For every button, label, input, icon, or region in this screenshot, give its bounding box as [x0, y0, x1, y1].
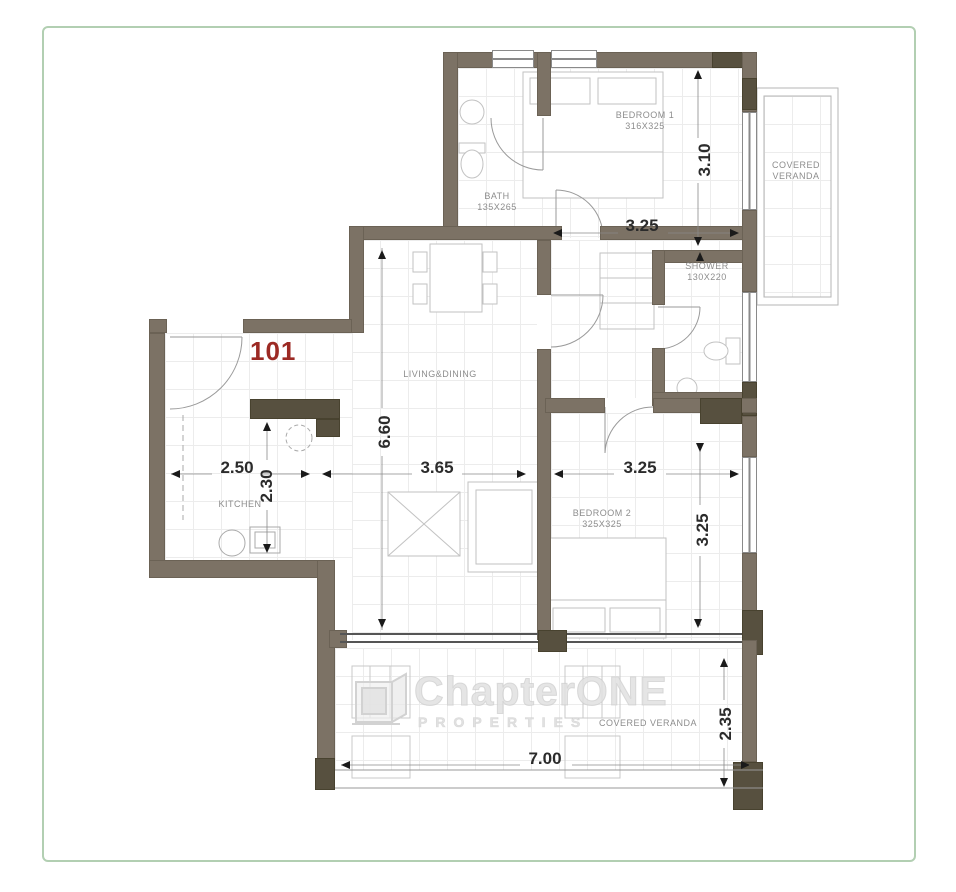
bath-size: 135X265 — [477, 202, 517, 212]
label-bath: BATH 135X265 — [477, 191, 517, 213]
label-bedroom2: BEDROOM 2 325X325 — [573, 508, 632, 530]
bedroom1-name: BEDROOM 1 — [616, 110, 675, 120]
dim-arrow-up — [720, 658, 728, 667]
dim-veranda-width: 7.00 — [528, 749, 561, 769]
shower-size: 130X220 — [687, 272, 727, 282]
watermark-tagline: PROPERTIES — [418, 714, 588, 730]
bedroom2-name: BEDROOM 2 — [573, 508, 632, 518]
dim-veranda-depth: 2.35 — [716, 707, 736, 740]
watermark-logo-icon — [348, 668, 412, 732]
veranda-bottom-name: COVERED VERANDA — [599, 718, 697, 728]
dim-arrow-left — [171, 470, 180, 478]
dim-kitchen-depth: 2.30 — [257, 469, 277, 502]
dim-arrow-right — [730, 470, 739, 478]
dim-arrow-down — [720, 778, 728, 787]
dim-arrow-right — [517, 470, 526, 478]
dim-bedroom1-depth: 3.10 — [695, 143, 715, 176]
dim-arrow-down — [378, 619, 386, 628]
dim-living-length: 6.60 — [375, 415, 395, 448]
unit-number: 101 — [250, 336, 296, 367]
dim-arrow-left — [322, 470, 331, 478]
shower-name: SHOWER — [685, 261, 729, 271]
dim-arrow-down — [694, 237, 702, 246]
bedroom2-size: 325X325 — [582, 519, 622, 529]
watermark-brand-suffix: ONE — [576, 668, 668, 714]
dim-living-width: 3.65 — [420, 458, 453, 478]
dim-arrow-left — [554, 470, 563, 478]
dim-arrow-right — [301, 470, 310, 478]
floorplan-canvas: BEDROOM 1 316X325 BATH 135X265 SHOWER 13… — [0, 0, 956, 892]
watermark-brand-prefix: Chapter — [414, 668, 576, 714]
bath-name: BATH — [484, 191, 509, 201]
dim-arrow-right — [741, 761, 750, 769]
dim-arrow-left — [341, 761, 350, 769]
label-veranda-top: COVERED VERANDA — [772, 160, 820, 182]
bedroom1-size: 316X325 — [625, 121, 665, 131]
dim-arrow-down — [263, 544, 271, 553]
watermark-brand: ChapterONE — [414, 668, 668, 715]
dim-arrow-up — [696, 252, 704, 261]
dim-bedroom2-depth: 3.25 — [693, 513, 713, 546]
annotation-layer — [0, 0, 956, 892]
dim-arrow-down — [696, 443, 704, 452]
veranda-top-line2: VERANDA — [772, 171, 819, 181]
dim-arrow-up — [378, 250, 386, 259]
veranda-top-line1: COVERED — [772, 160, 820, 170]
dim-bedroom2-width: 3.25 — [623, 458, 656, 478]
dim-arrow-up — [263, 422, 271, 431]
dim-arrow-down — [694, 619, 702, 628]
label-veranda-bottom: COVERED VERANDA — [599, 718, 697, 729]
label-shower: SHOWER 130X220 — [685, 261, 729, 283]
dim-bedroom1-width: 3.25 — [625, 216, 658, 236]
label-kitchen: KITCHEN — [218, 499, 261, 510]
logo-building-window — [362, 688, 386, 714]
logo-building-side — [392, 674, 406, 722]
dim-arrow-right — [730, 229, 739, 237]
label-living: LIVING&DINING — [403, 369, 477, 380]
label-bedroom1: BEDROOM 1 316X325 — [616, 110, 675, 132]
living-name: LIVING&DINING — [403, 369, 477, 379]
dim-arrow-up — [694, 70, 702, 79]
dim-kitchen-width: 2.50 — [220, 458, 253, 478]
kitchen-name: KITCHEN — [218, 499, 261, 509]
dim-arrow-left — [553, 229, 562, 237]
